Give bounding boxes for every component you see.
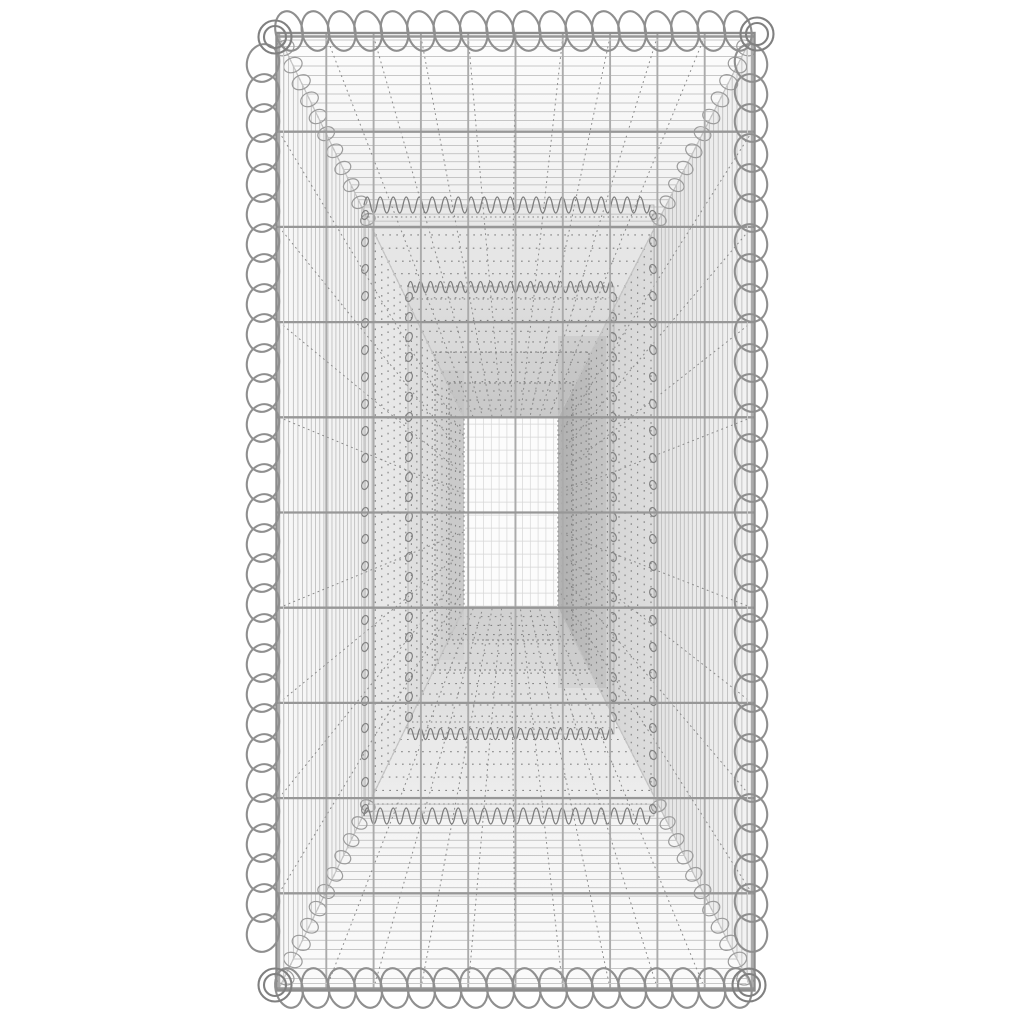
product-photo [0,0,1024,1024]
gabion-basket-image [0,0,1024,1024]
